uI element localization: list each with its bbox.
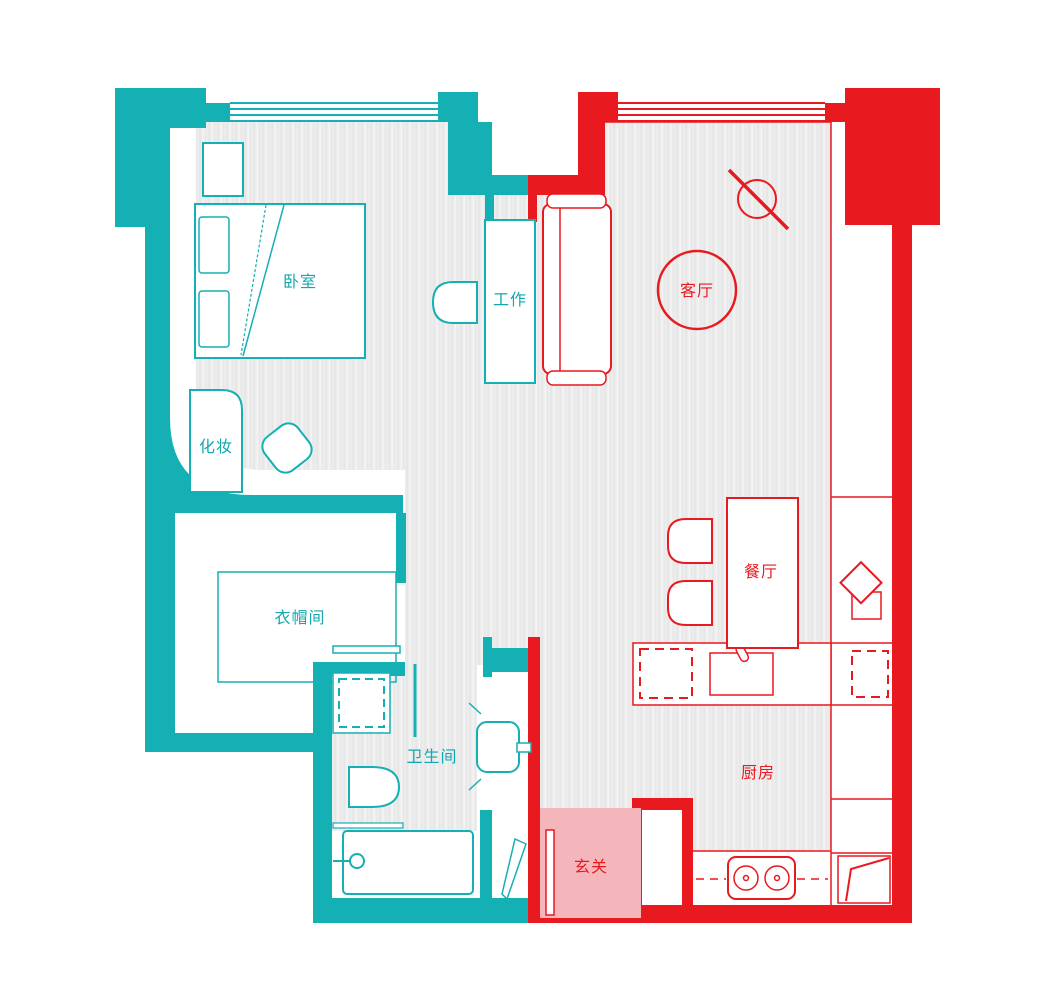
wall-bath-left xyxy=(313,662,332,923)
shower-screen xyxy=(333,823,403,828)
wall-tab-red-bar xyxy=(528,175,605,195)
label-cloakroom: 衣帽间 xyxy=(274,609,325,627)
appliance-dashed-right xyxy=(852,651,888,697)
kitchen-counter-bottom xyxy=(696,857,828,899)
wall-bottom-teal xyxy=(313,898,532,923)
label-bedroom: 卧室 xyxy=(283,273,317,291)
sofa-armrest-top xyxy=(547,194,606,208)
sink-tap xyxy=(517,743,531,752)
bathroom-sink xyxy=(477,722,519,772)
label-living: 客厅 xyxy=(680,282,714,300)
wall-desk-tie xyxy=(485,195,494,222)
sofa xyxy=(543,194,611,385)
wall-bath-niche xyxy=(480,810,492,898)
wall-tab-red-block xyxy=(578,92,618,122)
wall-left-strip xyxy=(145,227,170,407)
entry-door-leaf xyxy=(546,830,554,915)
wall-step xyxy=(206,103,230,122)
dining-chair-1 xyxy=(668,519,712,563)
wall-bath-top-right xyxy=(492,648,528,672)
wall-sofa-tie xyxy=(528,195,537,222)
right-column-items xyxy=(838,562,890,903)
washer-housing xyxy=(333,673,390,733)
desk-chair xyxy=(433,282,477,323)
window-living xyxy=(618,103,825,121)
label-kitchen: 厨房 xyxy=(741,764,775,782)
tub-drain xyxy=(350,854,364,868)
wall-left-lower xyxy=(145,513,175,752)
wall-cloakroom-right xyxy=(396,513,406,583)
floor-plan-svg: 卧室 工作 化妆 衣帽间 卫生间 客厅 餐厅 厨房 玄关 xyxy=(0,0,1060,995)
kitchen-counter-top xyxy=(633,643,831,705)
pillow-1 xyxy=(199,217,229,273)
wall-cloakroom-bottom xyxy=(145,733,332,752)
nightstand xyxy=(203,143,243,196)
wall-corner-top-right xyxy=(845,88,940,225)
wall-left-upper xyxy=(115,88,170,227)
pillow-2 xyxy=(199,291,229,347)
label-makeup: 化妆 xyxy=(199,438,233,456)
wall-right xyxy=(892,225,912,923)
burner-right xyxy=(765,866,789,890)
dining-chair-2 xyxy=(668,581,712,625)
wall-entry-left xyxy=(528,637,540,908)
closet-shelf-bar xyxy=(333,646,400,653)
wall-bath-stub xyxy=(483,637,492,677)
label-entry: 玄关 xyxy=(574,858,608,876)
toilet xyxy=(349,767,399,807)
label-work: 工作 xyxy=(493,291,527,309)
wall-tab-teal-bar xyxy=(448,175,528,195)
label-dining: 餐厅 xyxy=(744,563,778,581)
window-bedroom xyxy=(230,103,438,121)
wall-niche xyxy=(492,122,578,175)
wall-window-end xyxy=(825,103,845,122)
bathroom-door-swing xyxy=(502,839,526,899)
wall-tab-teal-block xyxy=(438,92,478,122)
burner-left xyxy=(734,866,758,890)
wall-entry-closet-right xyxy=(682,798,693,908)
floor-plan-page: 卧室 工作 化妆 衣帽间 卫生间 客厅 餐厅 厨房 玄关 xyxy=(0,0,1060,995)
sofa-armrest-bottom xyxy=(547,371,606,385)
label-bathroom: 卫生间 xyxy=(406,748,457,766)
